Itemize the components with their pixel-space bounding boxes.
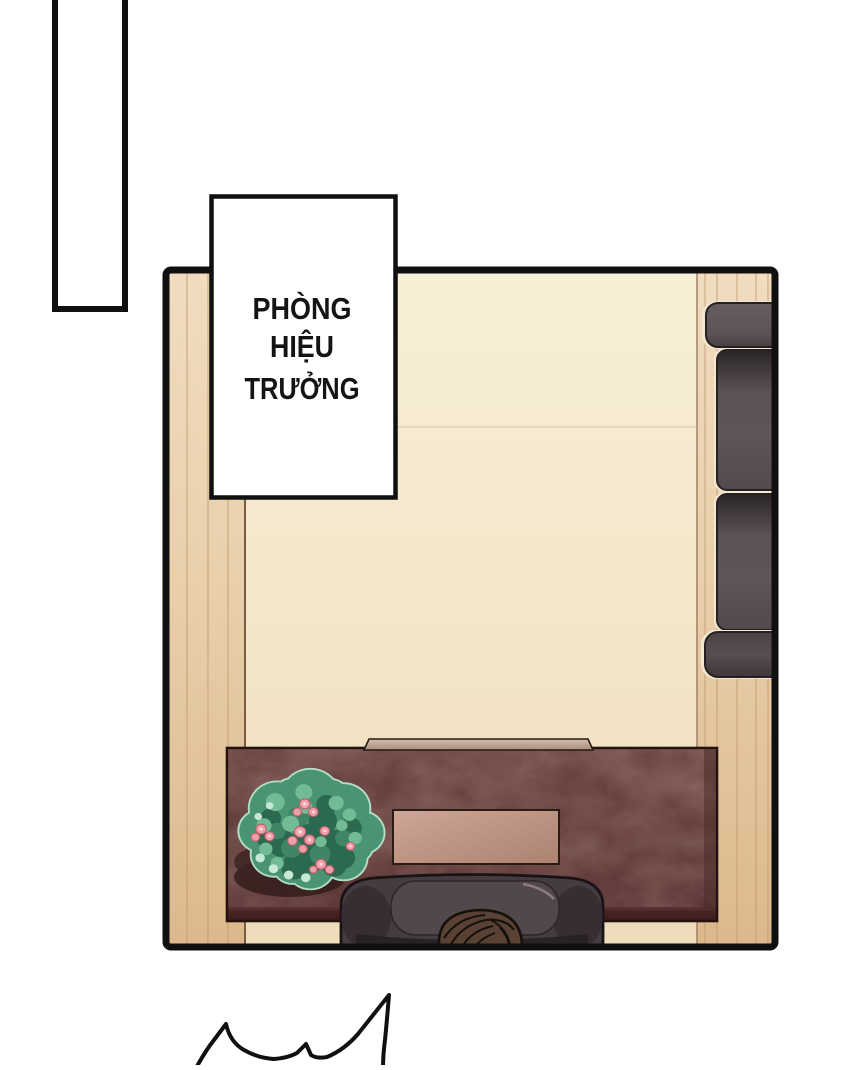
svg-text:TRƯỞNG: TRƯỞNG (245, 370, 360, 406)
svg-text:HIỆU: HIỆU (270, 328, 334, 364)
svg-text:PHÒNG: PHÒNG (253, 290, 352, 326)
